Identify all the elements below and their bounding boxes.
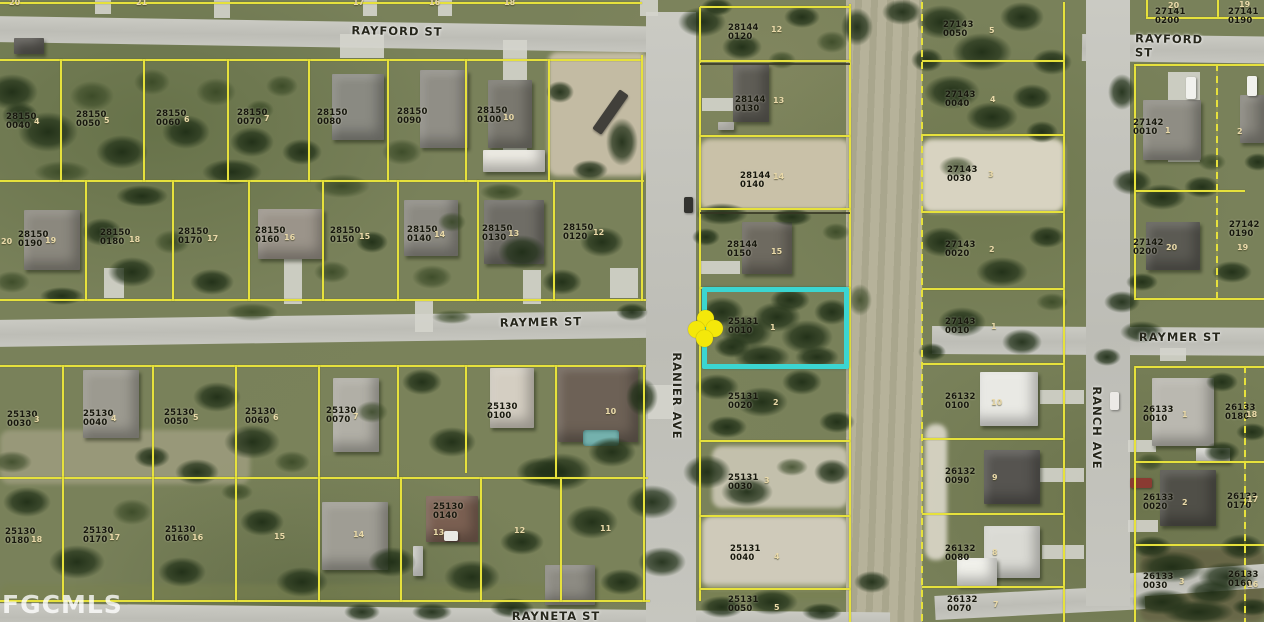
lot-number: 7 [353,412,359,421]
parcel-id-label: 28150 0180 [100,229,131,248]
lot-number: 4 [34,117,40,126]
lot-number: 15 [274,532,285,541]
lot-number: 12 [514,526,525,535]
lot-number: 14 [353,530,364,539]
lot-number: 5 [104,116,110,125]
lot-number: 3 [34,415,40,424]
lot-number: 5 [989,26,995,35]
parcel-id-label: 25130 0070 [326,407,357,426]
parcel-id-label: 27143 0050 [943,21,974,40]
parcel-id-label: 25130 0140 [433,503,464,522]
parcel-id-label: 28150 0170 [178,228,209,247]
parcel-id-label: 25131 0020 [728,393,759,412]
parcel-id-label: 25130 0060 [245,408,276,427]
lot-number: 6 [184,115,190,124]
lot-number: 12 [593,228,604,237]
parcel-id-label: 25130 0160 [165,526,196,545]
parcel-id-label: 27142 0190 [1229,221,1260,240]
parcel-id-label: 27143 0040 [945,91,976,110]
lot-number: 5 [774,603,780,612]
lot-number: 14 [773,172,784,181]
lot-number: 7 [264,114,270,123]
lot-number: 16 [284,233,295,242]
parcel-id-label: 28144 0120 [728,24,759,43]
lot-number: 17 [1247,495,1258,504]
lot-number: 19 [45,236,56,245]
parcel-id-label: 28144 0130 [735,96,766,115]
parcel-id-label: 25131 0030 [728,474,759,493]
lot-number: 2 [1237,127,1243,136]
parcel-id-label: 26133 0010 [1143,406,1174,425]
lot-number: 16 [429,0,440,7]
lot-number: 1 [991,322,997,331]
parcel-id-label: 28150 0050 [76,111,107,130]
lot-number: 18 [1246,410,1257,419]
lot-number: 5 [193,413,199,422]
parcel-id-label: 26132 0080 [945,545,976,564]
parcel-id-label: 26132 0070 [947,596,978,615]
lot-number: 1 [1165,126,1171,135]
lot-number: 1 [1182,410,1188,419]
parcel-id-label: 25130 0100 [487,403,518,422]
parcel-id-label: 27141 0200 [1155,8,1186,27]
lot-number: 4 [774,552,780,561]
lot-number: 20 [1,237,12,246]
parcel-id-label: 27142 0200 [1133,239,1164,258]
lot-number: 15 [771,247,782,256]
parcel-id-label: 27142 0010 [1133,119,1164,138]
parcel-id-label: 28150 0070 [237,109,268,128]
parcel-id-label: 28150 0150 [330,227,361,246]
parcel-id-label: 28150 0160 [255,227,286,246]
lot-number: 19 [1237,243,1248,252]
street-name-label: RANIER AVE [670,352,684,439]
lot-number: 12 [771,25,782,34]
street-name-label: RAYMER ST [500,314,583,329]
lot-number: 18 [504,0,515,7]
parcel-id-label: 26133 0030 [1143,573,1174,592]
parcel-id-label: 28150 0140 [407,226,438,245]
lot-number: 4 [990,95,996,104]
lot-number: 6 [273,413,279,422]
street-name-label: RAYNETA ST [512,609,600,622]
lot-number: 19 [1239,0,1250,9]
lot-number: 15 [359,232,370,241]
parcel-id-label: 25130 0040 [83,410,114,429]
lot-number: 2 [773,398,779,407]
lot-number: 18 [31,535,42,544]
street-name-label: RAYMER ST [1139,330,1221,344]
parcel-id-label: 25130 0050 [164,409,195,428]
lot-number: 10 [503,113,514,122]
parcel-id-label: 27143 0030 [947,166,978,185]
street-name-label: RAYFORD ST [1135,31,1221,60]
lot-number: 3 [764,476,770,485]
parcel-id-label: 28150 0080 [317,109,348,128]
lot-number: 17 [109,533,120,542]
lot-number: 13 [773,96,784,105]
lot-number: 10 [605,407,616,416]
parcel-id-label: 26132 0100 [945,393,976,412]
lot-number: 20 [9,0,20,7]
parcel-id-label: 27143 0010 [945,318,976,337]
parcel-id-label: 28150 0040 [6,113,37,132]
lot-number: 1 [770,323,776,332]
lot-number: 21 [136,0,147,7]
lot-number: 8 [992,548,998,557]
parcel-id-label: 25130 0030 [7,411,38,430]
watermark: FGCMLS [2,590,123,619]
lot-number: 3 [1179,577,1185,586]
lot-number: 18 [129,235,140,244]
parcel-id-label: 27141 0190 [1228,8,1259,27]
parcel-id-label: 28144 0150 [727,241,758,260]
lot-number: 20 [1168,1,1179,10]
lot-number: 2 [1182,498,1188,507]
lot-number: 14 [434,230,445,239]
lot-number: 11 [600,524,611,533]
parcel-id-label: 28150 0120 [563,224,594,243]
lot-number: 20 [1166,243,1177,252]
aerial-parcel-map: 28150 004028150 005028150 006028150 0070… [0,0,1264,622]
lot-number: 13 [433,528,444,537]
lot-number: 2 [989,245,995,254]
lot-number: 16 [192,533,203,542]
lot-number: 3 [988,170,994,179]
lot-number: 17 [353,0,364,7]
parcel-id-label: 26132 0090 [945,468,976,487]
street-name-label: RANCH AVE [1090,386,1104,469]
parcel-id-label: 28144 0140 [740,172,771,191]
parcel-id-label: 28150 0060 [156,110,187,129]
lot-number: 17 [207,234,218,243]
lot-number: 10 [991,398,1002,407]
lot-number: 7 [993,600,999,609]
lot-number: 4 [111,414,117,423]
lot-number: 16 [1247,580,1258,589]
parcel-id-label: 27143 0020 [945,241,976,260]
parcel-id-label: 25131 0010 [728,318,759,337]
parcel-id-label: 25131 0040 [730,545,761,564]
parcel-id-label: 28150 0090 [397,108,428,127]
parcel-id-label: 25131 0050 [728,596,759,615]
lot-number: 9 [992,473,998,482]
labels-layer: 28150 004028150 005028150 006028150 0070… [0,0,1264,622]
street-name-label: RAYFORD ST [351,23,442,39]
parcel-id-label: 26133 0020 [1143,494,1174,513]
lot-number: 13 [508,229,519,238]
parcel-id-label: 28150 0190 [18,231,49,250]
